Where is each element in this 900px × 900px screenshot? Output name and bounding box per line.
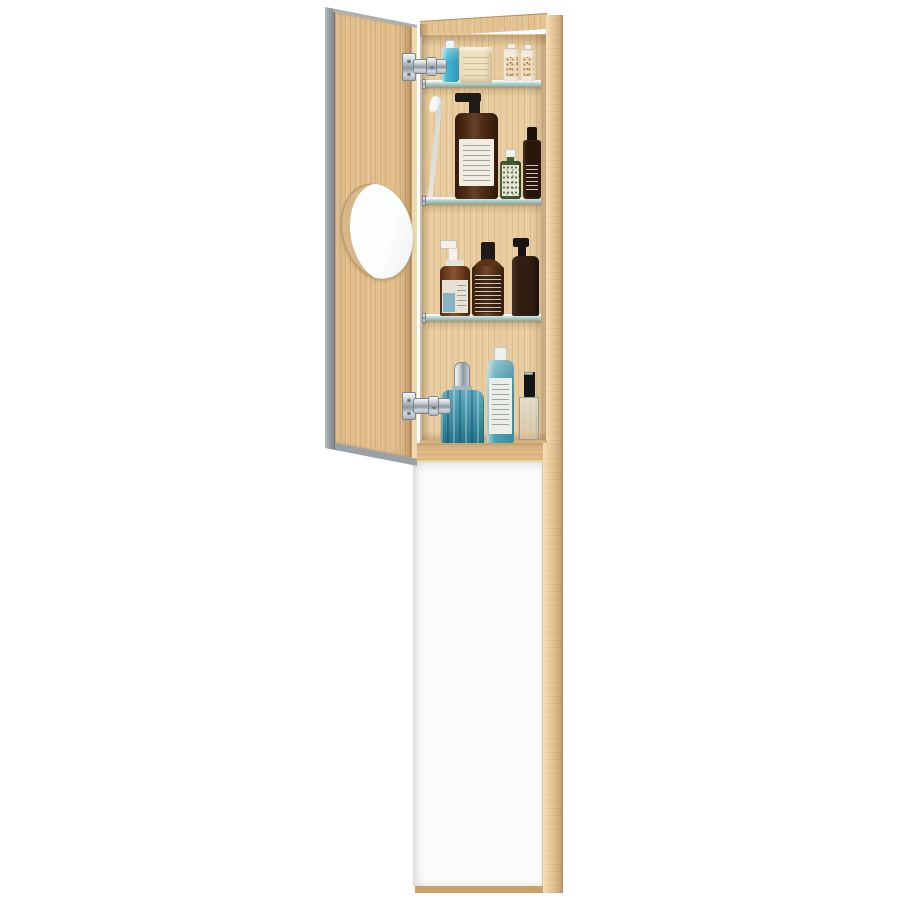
perfume-cap: [524, 372, 535, 397]
mini-bottle-label: [522, 57, 534, 77]
spray-bottle-label: [442, 280, 468, 313]
amber-bottle-label-text: [475, 275, 501, 313]
shelf-clip-3: [422, 313, 426, 323]
hinge-bottom: [402, 391, 452, 421]
mini-lotion-bottle-2: [521, 44, 535, 81]
lower-bottom-lip: [415, 886, 543, 893]
hinge-screw: [407, 59, 411, 63]
label-text-lines: [457, 285, 466, 309]
dark-bottle-cap: [527, 127, 537, 141]
hinge-screw: [430, 65, 434, 69]
lower-cabinet: [413, 443, 563, 895]
amber-spray-bottle: [440, 240, 470, 316]
perfume-cap-band: [524, 372, 533, 375]
amber-bottle-label: [459, 139, 494, 186]
amber-pump-bottle-large: [455, 92, 498, 199]
hinge-screw: [407, 411, 411, 415]
glass-shelf-2-shadow: [423, 204, 541, 214]
hinge-top: [402, 52, 448, 82]
toothbrush-handle: [428, 108, 442, 198]
dark-pump-body: [512, 256, 539, 316]
product-photo-stage: [0, 0, 900, 900]
green-bottle-label: [502, 165, 519, 196]
dark-bottle-label-text: [526, 165, 538, 191]
hinge-screw: [432, 405, 436, 409]
shampoo-label: [489, 378, 512, 434]
lower-white-door: [413, 462, 543, 886]
hinge-top-boss: [426, 57, 437, 76]
glass-shelf-3-shadow: [423, 321, 541, 331]
lower-top-rail: [413, 443, 563, 462]
soap-bar-block: [460, 47, 492, 83]
blue-bottle-chrome-cap: [454, 362, 470, 387]
label-text-lines: [492, 384, 509, 428]
label-text-lines: [463, 145, 490, 181]
amber-label-bottle: [472, 242, 504, 316]
mini-lotion-bottle-1: [504, 43, 519, 81]
green-tonic-bottle: [500, 149, 521, 199]
right-stile-upper: [546, 15, 563, 462]
spray-label-blue-patch: [443, 293, 455, 312]
right-stile-lower: [543, 443, 563, 893]
hinge-bottom-boss: [428, 396, 439, 416]
perfume-body: [519, 397, 539, 440]
shampoo-cap: [494, 347, 507, 361]
dark-spray-bottle: [523, 127, 541, 199]
hinge-screw: [407, 398, 411, 402]
perfume-bottle: [519, 372, 539, 440]
toothbrush: [426, 96, 452, 200]
mini-bottle-label: [505, 57, 518, 77]
dark-pump-bottle: [512, 238, 539, 316]
hinge-screw: [407, 72, 411, 76]
pump-nozzle: [513, 238, 529, 247]
mirror-edge-strip: [325, 7, 335, 450]
soap-emboss-lines: [463, 57, 489, 80]
teal-shampoo-bottle: [487, 347, 514, 443]
